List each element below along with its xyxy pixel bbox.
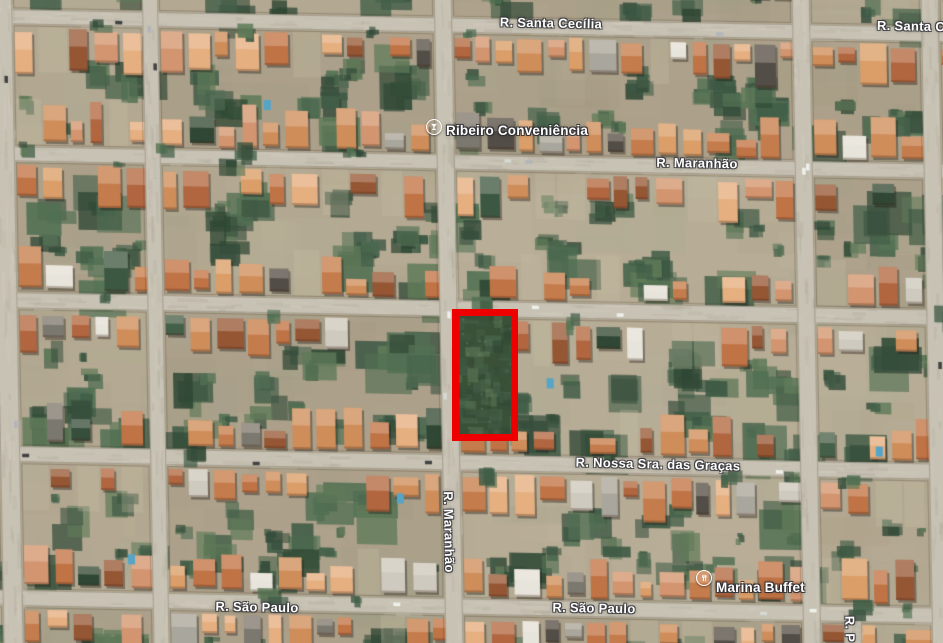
highlighted-parcel[interactable] <box>452 309 518 441</box>
satellite-map[interactable]: R. Santa Cecília R. Santa C R. Maranhão … <box>0 0 943 643</box>
poi-label: Ribeiro Conveniência <box>446 123 588 138</box>
poi-marker-ribeiro-conveniencia[interactable]: Ribeiro Conveniência <box>426 119 588 135</box>
drink-icon <box>426 119 442 135</box>
poi-marker-marina-buffet[interactable]: Marina Buffet <box>696 570 805 586</box>
restaurant-icon <box>696 570 712 586</box>
poi-label: Marina Buffet <box>716 580 805 595</box>
